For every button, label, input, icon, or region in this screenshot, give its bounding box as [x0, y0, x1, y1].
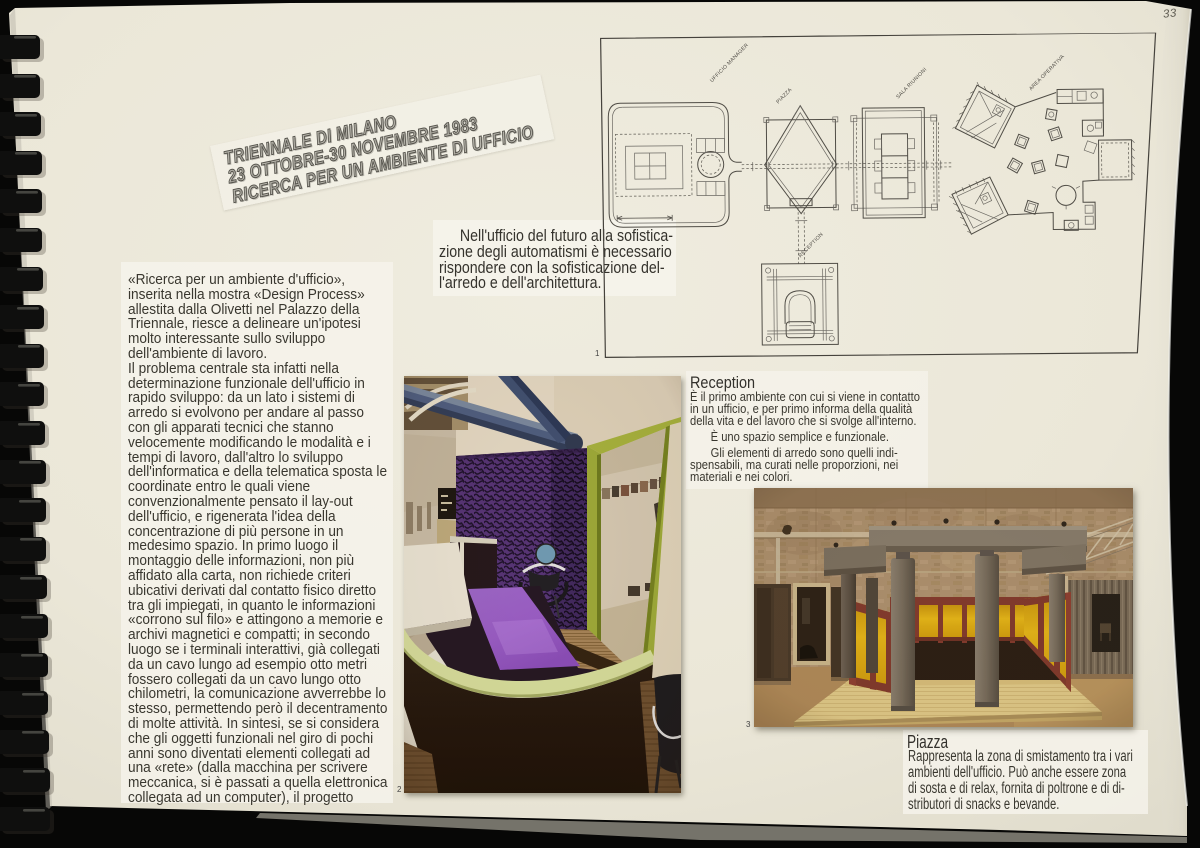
svg-text:SALA RIUNIONI: SALA RIUNIONI: [895, 67, 928, 100]
svg-text:PIAZZA: PIAZZA: [775, 87, 793, 105]
svg-text:UFFICIO MANAGER: UFFICIO MANAGER: [709, 42, 750, 83]
svg-text:RECEPTION: RECEPTION: [798, 232, 825, 259]
svg-text:AREA OPERATIVA: AREA OPERATIVA: [1028, 54, 1066, 92]
